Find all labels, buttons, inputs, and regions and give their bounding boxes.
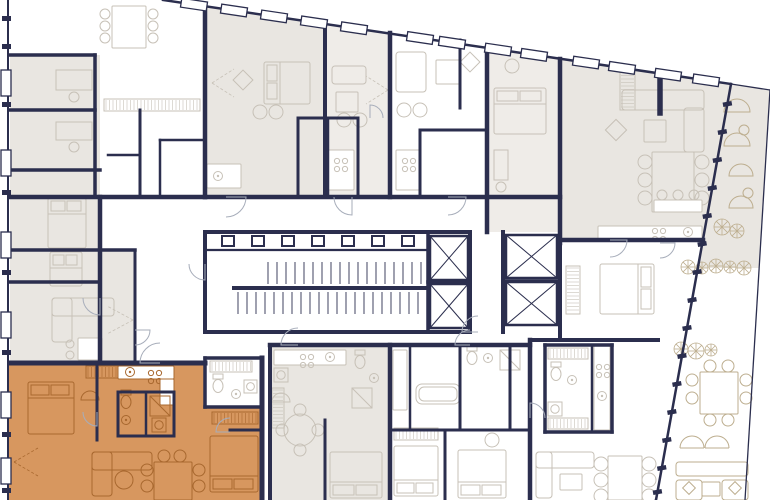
plant <box>705 344 717 356</box>
counter <box>207 164 241 188</box>
core-column <box>402 236 414 246</box>
window-mullion <box>653 489 663 495</box>
plant <box>688 343 704 359</box>
window-mullion <box>662 437 672 443</box>
door-swing-arc <box>660 243 675 258</box>
sink-drain <box>217 175 219 177</box>
chair <box>413 103 427 117</box>
bed-pillow <box>641 289 651 309</box>
plant <box>709 259 723 273</box>
unit-top-right <box>560 59 731 240</box>
sink-drain <box>329 356 331 358</box>
plant-spoke <box>702 268 706 272</box>
door-swing-arc <box>189 264 205 280</box>
plant-spoke <box>690 345 696 351</box>
bathtub-inner <box>419 387 457 401</box>
plant-spoke <box>711 350 715 354</box>
chair <box>642 473 656 487</box>
armchair <box>729 482 742 495</box>
lounge-chair <box>680 436 704 448</box>
sofa <box>536 452 552 498</box>
chair <box>722 414 734 426</box>
core-column <box>282 236 294 246</box>
stair-mid-rail <box>232 286 450 290</box>
bed-pillow <box>482 485 501 495</box>
window-mullion <box>2 350 11 355</box>
bed-pillow <box>416 483 433 493</box>
plant-spoke <box>690 351 696 357</box>
counter <box>594 346 610 430</box>
unit-top-d <box>487 48 560 232</box>
core-column <box>252 236 264 246</box>
door-swing-arc <box>448 197 466 215</box>
window-mullion <box>677 353 687 359</box>
plant <box>714 219 730 235</box>
window-frame <box>438 36 465 49</box>
armchair <box>460 52 480 72</box>
bed-pillow <box>397 483 414 493</box>
plant-spoke <box>676 349 681 354</box>
table <box>702 482 720 496</box>
door-swing-arc <box>140 343 160 363</box>
chair <box>100 9 110 19</box>
sink-drain <box>487 357 489 359</box>
washer <box>548 402 562 416</box>
sink-drain <box>687 231 689 233</box>
chair <box>148 33 158 43</box>
chair <box>397 103 411 117</box>
counter <box>328 150 354 190</box>
toilet-tank <box>551 362 561 367</box>
sink-drain <box>373 377 375 379</box>
toilet <box>551 368 561 381</box>
floor-plan <box>0 0 770 500</box>
plant-spoke <box>711 346 715 350</box>
chair <box>485 433 499 447</box>
window-frame <box>1 70 11 96</box>
chair <box>722 360 734 372</box>
window-frame <box>180 0 207 11</box>
window-frame <box>1 150 11 176</box>
window-mullion <box>2 102 11 107</box>
counter <box>393 350 407 410</box>
plant-spoke <box>688 262 693 267</box>
chair <box>148 21 158 31</box>
counter <box>654 200 702 212</box>
window-mullion <box>2 16 11 21</box>
table <box>560 474 582 490</box>
window-mullion <box>2 488 11 493</box>
window-frame <box>1 232 11 258</box>
table <box>608 456 642 500</box>
door-swing-arc <box>226 197 246 217</box>
sofa <box>676 480 702 500</box>
table <box>700 372 738 414</box>
armchair <box>683 482 696 495</box>
floor-plan-canvas <box>0 0 770 500</box>
wardrobe <box>104 99 200 111</box>
plant-spoke <box>676 344 681 349</box>
wardrobe <box>548 418 588 429</box>
toilet <box>467 352 477 365</box>
window-mullion <box>682 325 692 331</box>
sink-drain <box>571 379 573 381</box>
sofa <box>536 452 594 468</box>
plant-spoke <box>696 345 702 351</box>
chair <box>594 473 608 487</box>
plant <box>730 224 744 238</box>
window-frame <box>1 312 11 338</box>
chair <box>704 360 716 372</box>
core-column <box>312 236 324 246</box>
chair <box>148 9 158 19</box>
chair <box>686 374 698 386</box>
table <box>436 60 460 84</box>
window-mullion <box>2 270 11 275</box>
door-swing-arc <box>610 240 627 257</box>
chair <box>740 374 752 386</box>
bed-pillow <box>461 485 480 495</box>
bed-pillow <box>641 267 651 287</box>
plant <box>724 261 736 273</box>
sofa <box>722 480 748 500</box>
sink-drain <box>601 395 603 397</box>
plant-spoke <box>707 350 711 354</box>
plant-spoke <box>683 262 688 267</box>
counter <box>118 366 174 379</box>
lounge-chair <box>705 436 729 448</box>
washer-drum <box>551 405 559 413</box>
door-swing-arc <box>334 197 352 215</box>
door-swing-arc <box>135 330 150 345</box>
plant-spoke <box>739 268 744 273</box>
chair <box>594 457 608 471</box>
plant-spoke <box>696 351 702 357</box>
chair <box>740 392 752 404</box>
window-mullion <box>2 190 11 195</box>
window-mullion <box>2 44 11 49</box>
window-frame <box>1 458 11 484</box>
window-frame <box>406 32 433 45</box>
core-column <box>222 236 234 246</box>
sink-drain <box>129 371 131 373</box>
chair <box>100 21 110 31</box>
counter <box>396 150 420 190</box>
plant-spoke <box>688 267 693 272</box>
window-mullion <box>667 409 677 415</box>
plant-spoke <box>744 268 749 273</box>
window-mullion <box>2 432 11 437</box>
chair <box>704 414 716 426</box>
core-column <box>342 236 354 246</box>
chair <box>642 457 656 471</box>
chair <box>100 33 110 43</box>
chair <box>686 392 698 404</box>
plant-spoke <box>683 267 688 272</box>
sink-drain <box>125 419 127 421</box>
plant <box>737 261 751 275</box>
window-mullion <box>687 297 697 303</box>
wardrobe <box>548 348 588 359</box>
window-mullion <box>657 465 667 471</box>
window-frame <box>1 392 11 418</box>
chair <box>594 489 608 500</box>
window-mullion <box>672 381 682 387</box>
unit-left-lower <box>100 250 135 363</box>
sofa <box>676 462 748 476</box>
plant-spoke <box>707 346 711 350</box>
core-column <box>372 236 384 246</box>
sink-drain <box>235 393 237 395</box>
sofa <box>396 52 426 92</box>
table <box>112 6 146 48</box>
